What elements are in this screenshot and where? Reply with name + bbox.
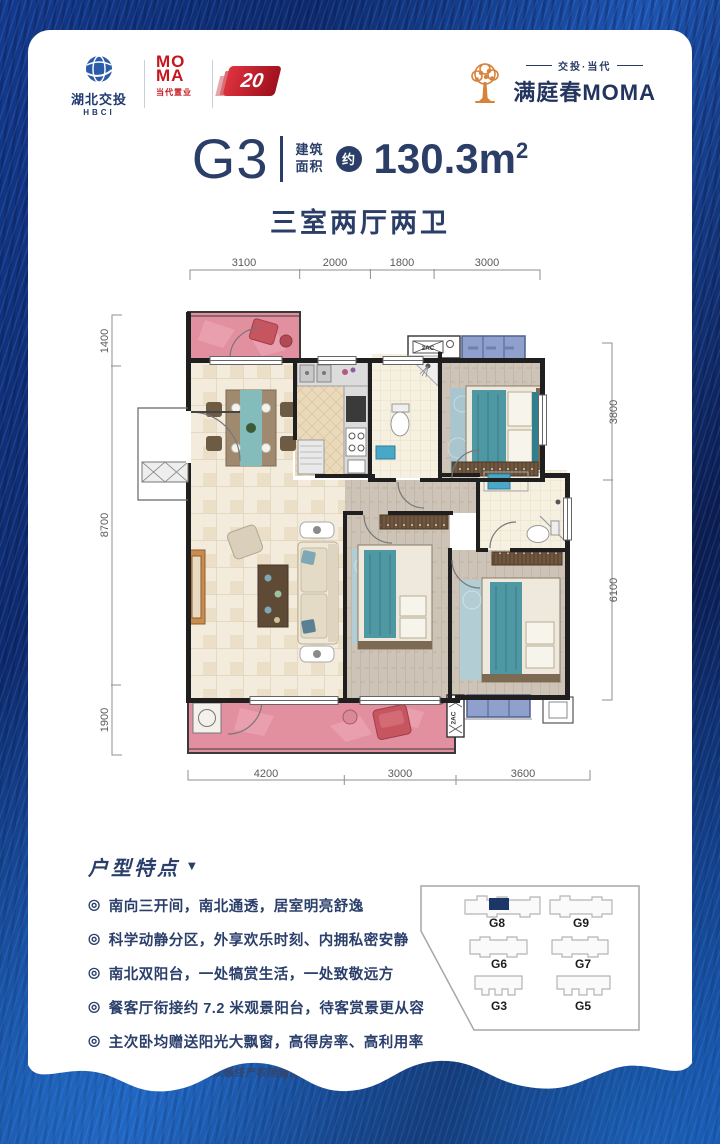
bullet-icon: ◎: [88, 895, 101, 913]
hbci-logo: 湖北交投 HBCI: [60, 54, 138, 117]
north-balcony: [188, 312, 300, 360]
badge-20-label: 20: [239, 70, 265, 93]
site-unit-label: G7: [575, 957, 591, 971]
hall-floor: [345, 480, 478, 513]
site-unit-label: G8: [489, 916, 505, 930]
site-unit-label: G5: [575, 999, 591, 1013]
site-unit-label: G6: [491, 957, 507, 971]
divider: [212, 60, 213, 108]
bullet-icon: ◎: [88, 963, 101, 981]
hbci-abbr: HBCI: [60, 108, 138, 117]
features-list: ◎南向三开间，南北通透，居室明亮舒逸 ◎科学动静分区，外享欢乐时刻、内拥私密安静…: [88, 895, 428, 1052]
project-logo: 交投·当代 满庭春MOMA: [465, 58, 656, 107]
svg-text:6100: 6100: [608, 578, 620, 602]
bullet-icon: ◎: [88, 997, 101, 1015]
svg-text:3100: 3100: [232, 257, 256, 269]
svg-text:2000: 2000: [323, 257, 347, 269]
bullet-icon: ◎: [88, 929, 101, 947]
svg-text:2AC: 2AC: [421, 345, 434, 352]
feature-item: ◎南向三开间，南北通透，居室明亮舒逸: [88, 895, 428, 916]
building-g5[interactable]: [557, 976, 610, 995]
area-value: 130.3m2: [374, 135, 529, 183]
floor-plan: 3100 2000 1800 3000 1400 8700 1900 3800 …: [100, 255, 660, 815]
svg-text:3000: 3000: [475, 257, 499, 269]
unit-title-block: G3 建筑面积 约 130.3m2 三室两厅两卫: [28, 126, 692, 240]
svg-text:4200: 4200: [254, 768, 278, 780]
bedroom2-furniture: [448, 386, 544, 476]
feature-item: ◎餐客厅衔接约 7.2 米观景阳台，待客赏景更从容: [88, 997, 428, 1018]
building-g7[interactable]: [552, 937, 608, 957]
wave-edge: [28, 1049, 692, 1111]
tree-icon: [465, 60, 505, 106]
features-section: 户型特点▼ ◎南向三开间，南北通透，居室明亮舒逸 ◎科学动静分区，外享欢乐时刻、…: [88, 852, 428, 1080]
ac-platform-top: 2AC: [408, 336, 460, 358]
area-label: 建筑面积: [295, 142, 323, 175]
building-g3[interactable]: [475, 976, 522, 995]
header: 湖北交投 HBCI MO MA 当代置业 20: [28, 52, 692, 122]
feature-item: ◎科学动静分区，外享欢乐时刻、内拥私密安静: [88, 929, 428, 950]
unit-code: G3: [192, 126, 269, 191]
project-tagline: 交投·当代: [513, 58, 656, 73]
svg-text:2AC: 2AC: [451, 711, 458, 724]
bullet-icon: ◎: [88, 1031, 101, 1049]
bay-window-top: [462, 336, 525, 360]
divider: [144, 60, 145, 108]
svg-text:3600: 3600: [511, 768, 535, 780]
moma-sub: 当代置业: [156, 87, 192, 98]
svg-text:1900: 1900: [100, 708, 111, 732]
highlighted-unit: [489, 898, 509, 910]
moma-logo: MO MA 当代置业: [156, 55, 192, 98]
room-configuration: 三室两厅两卫: [28, 201, 692, 240]
svg-text:3800: 3800: [608, 400, 620, 424]
approx-circle: 约: [336, 146, 362, 172]
south-balcony: [188, 700, 455, 753]
anniversary-20-badge: 20: [222, 66, 281, 96]
svg-text:3000: 3000: [388, 768, 412, 780]
hbci-name: 湖北交投: [60, 89, 138, 108]
site-unit-label: G3: [491, 999, 507, 1013]
features-title: 户型特点▼: [88, 852, 428, 881]
moma-line2: MA: [156, 69, 192, 83]
svg-text:1800: 1800: [390, 257, 414, 269]
brochure-card: 湖北交投 HBCI MO MA 当代置业 20: [28, 30, 692, 1050]
project-name: 满庭春MOMA: [513, 75, 656, 107]
globe-icon: [84, 54, 114, 84]
site-unit-label: G9: [573, 916, 589, 930]
svg-text:8700: 8700: [100, 513, 111, 537]
building-g6[interactable]: [470, 937, 527, 957]
triangle-down-icon: ▼: [188, 861, 199, 872]
svg-text:1400: 1400: [100, 329, 111, 353]
divider: [280, 136, 283, 182]
site-plan: G8 G9 G6 G7 G3 G5: [419, 882, 641, 1032]
feature-item: ◎南北双阳台，一处犒赏生活，一处致敬远方: [88, 963, 428, 984]
